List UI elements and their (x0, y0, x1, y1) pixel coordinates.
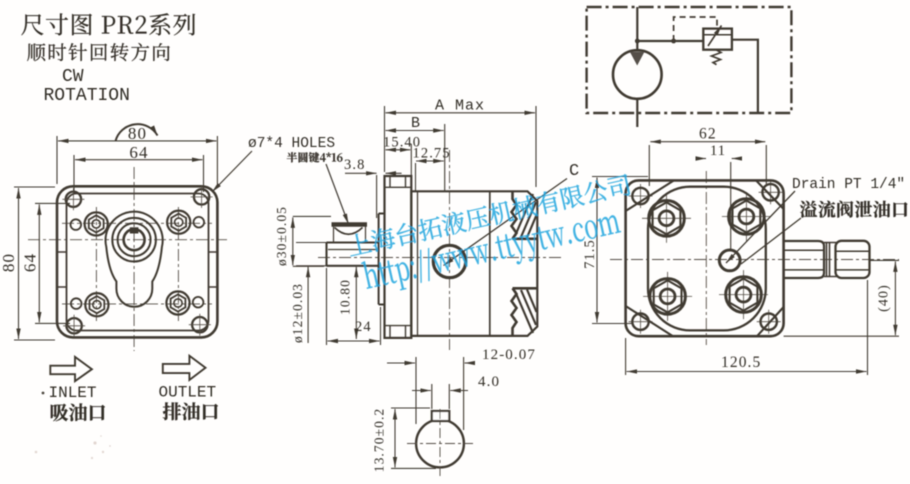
svg-text:C: C (569, 162, 579, 181)
svg-text:10.80: 10.80 (338, 279, 353, 315)
svg-text:62: 62 (699, 126, 717, 143)
svg-text:4.0: 4.0 (478, 374, 500, 390)
svg-text:12-0.07: 12-0.07 (482, 347, 536, 363)
svg-text:24: 24 (355, 319, 372, 335)
svg-text:64: 64 (20, 253, 39, 272)
svg-text:64: 64 (129, 143, 148, 162)
svg-text:11: 11 (710, 143, 726, 159)
svg-text:120.5: 120.5 (721, 354, 761, 371)
svg-text:ø7*4 HOLES: ø7*4 HOLES (248, 136, 335, 152)
svg-text:CW: CW (62, 67, 84, 87)
svg-text:ROTATION: ROTATION (44, 86, 130, 106)
svg-text:INLET: INLET (49, 384, 97, 402)
svg-text:80: 80 (0, 253, 18, 272)
svg-text:71.5: 71.5 (582, 239, 598, 269)
svg-text:3.8: 3.8 (344, 157, 365, 173)
svg-text:12.75: 12.75 (413, 146, 451, 162)
svg-text:80: 80 (128, 124, 147, 143)
svg-text:(40): (40) (877, 284, 892, 312)
svg-text:13.70±0.2: 13.70±0.2 (372, 408, 387, 473)
svg-text:OUTLET: OUTLET (159, 384, 217, 402)
svg-text:A Max: A Max (435, 98, 485, 115)
svg-text:ø12±0.03: ø12±0.03 (290, 283, 305, 343)
svg-text:B: B (411, 115, 420, 132)
svg-text:Drain PT 1/4": Drain PT 1/4" (792, 177, 905, 193)
svg-text:ø30±0.05: ø30±0.05 (274, 206, 289, 266)
